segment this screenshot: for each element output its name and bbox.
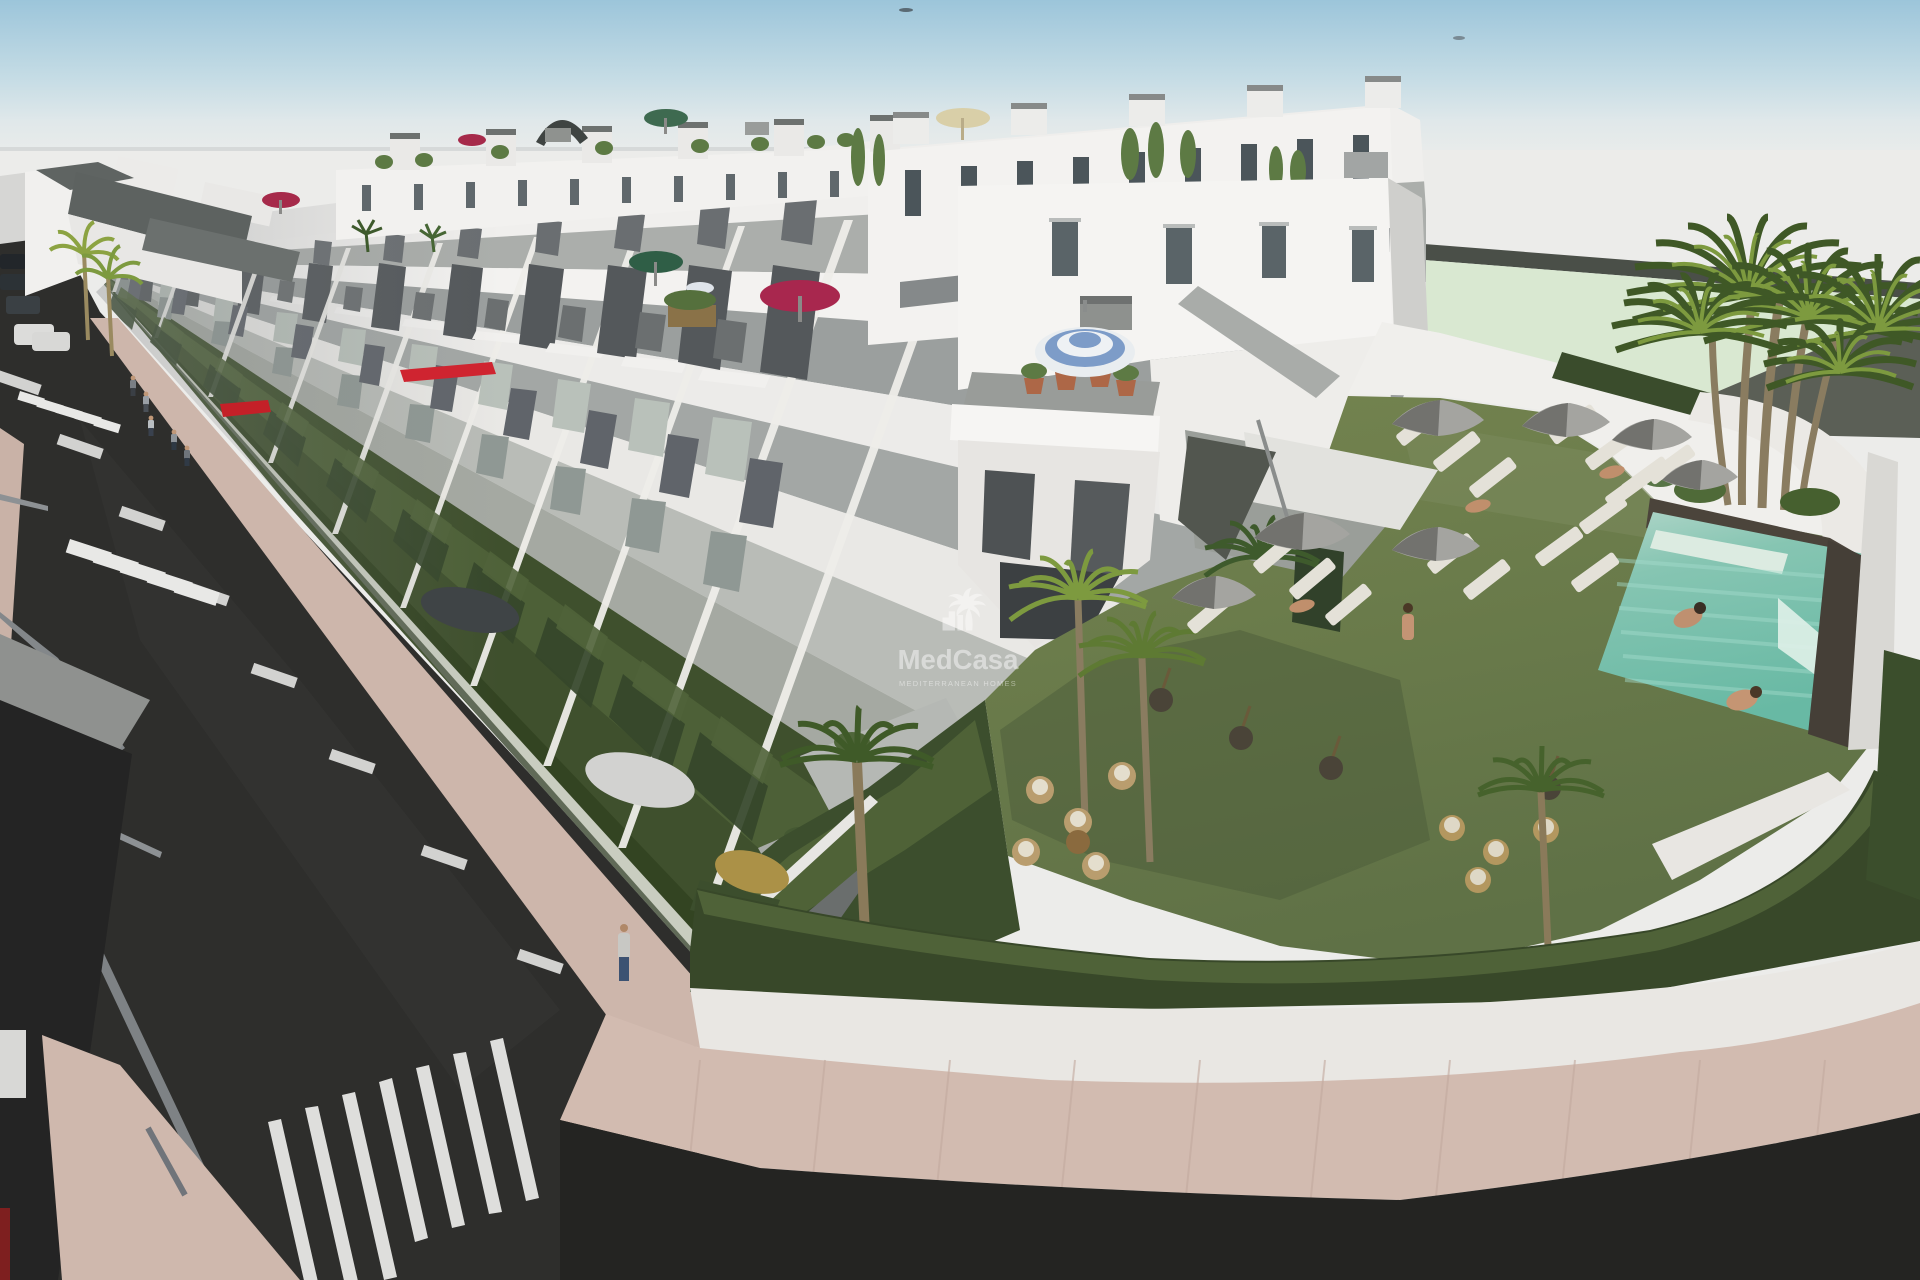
svg-text:MEDITERRANEAN HOMES: MEDITERRANEAN HOMES	[899, 679, 1017, 688]
svg-text:MedCasa: MedCasa	[898, 644, 1019, 675]
